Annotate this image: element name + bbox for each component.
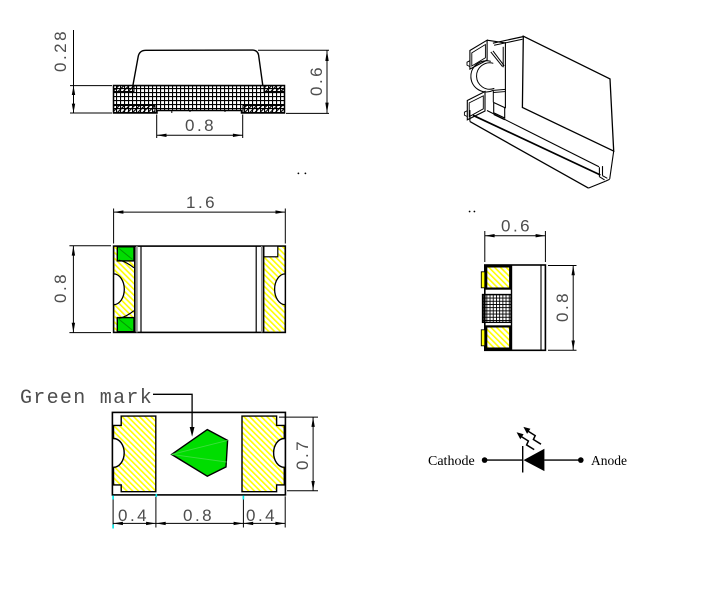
svg-text:1.6: 1.6: [186, 193, 217, 212]
svg-text:0.8: 0.8: [51, 272, 70, 303]
svg-text:0.6: 0.6: [501, 217, 532, 236]
svg-text:0.4: 0.4: [118, 506, 149, 525]
svg-text:Green mark: Green mark: [20, 387, 153, 410]
svg-text:Anode: Anode: [591, 453, 627, 468]
svg-text:0.8: 0.8: [185, 116, 216, 135]
svg-text:0.4: 0.4: [246, 506, 277, 525]
svg-text:0.8: 0.8: [553, 291, 572, 322]
svg-text:0.28: 0.28: [51, 29, 70, 72]
svg-text:Cathode: Cathode: [428, 454, 475, 469]
svg-text:0.6: 0.6: [307, 65, 326, 96]
svg-text:0.7: 0.7: [293, 439, 312, 470]
svg-text:0.8: 0.8: [183, 506, 214, 525]
